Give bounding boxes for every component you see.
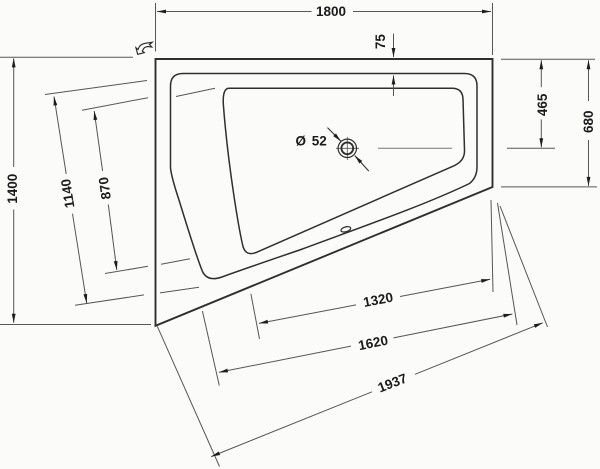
svg-text:1400: 1400 (5, 174, 20, 204)
svg-text:75: 75 (373, 34, 388, 50)
svg-text:870: 870 (96, 176, 114, 200)
svg-text:1800: 1800 (316, 4, 346, 19)
svg-text:1320: 1320 (362, 290, 394, 310)
svg-text:680: 680 (581, 110, 596, 133)
svg-text:1140: 1140 (58, 178, 77, 209)
svg-text:Ø 52: Ø 52 (296, 133, 327, 148)
svg-text:465: 465 (535, 93, 550, 116)
svg-text:1937: 1937 (376, 371, 409, 396)
svg-text:1620: 1620 (357, 333, 389, 354)
